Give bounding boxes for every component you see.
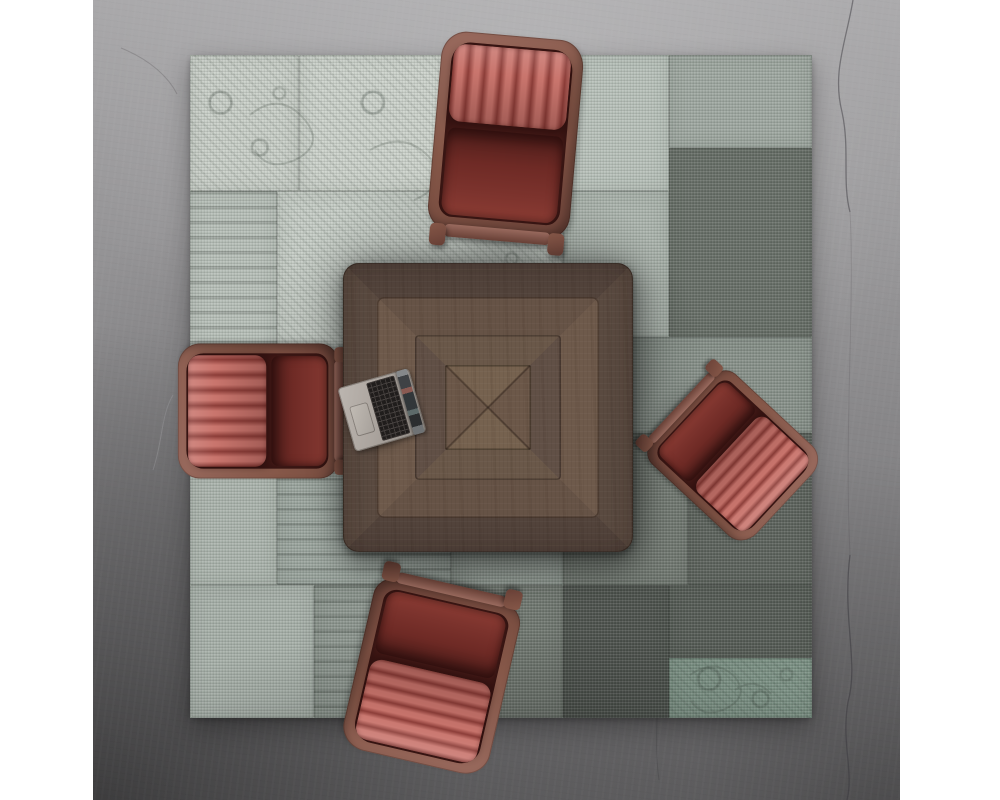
chair-tufted-backrest [188, 355, 266, 467]
chair-tufted-backrest [448, 43, 572, 131]
table-inlay-ring-3 [415, 335, 561, 480]
chair-front-leg-right [547, 233, 565, 256]
chair-left [178, 344, 352, 479]
chair-seat-cushion [441, 127, 564, 224]
chair-right [632, 355, 827, 548]
chair-bottom [338, 559, 527, 779]
chair-top [425, 30, 586, 257]
chair-front-leg-left [428, 222, 446, 245]
table-center-medallion [445, 365, 531, 450]
chair-seat-cushion [271, 356, 326, 466]
scene-photo [93, 0, 900, 800]
